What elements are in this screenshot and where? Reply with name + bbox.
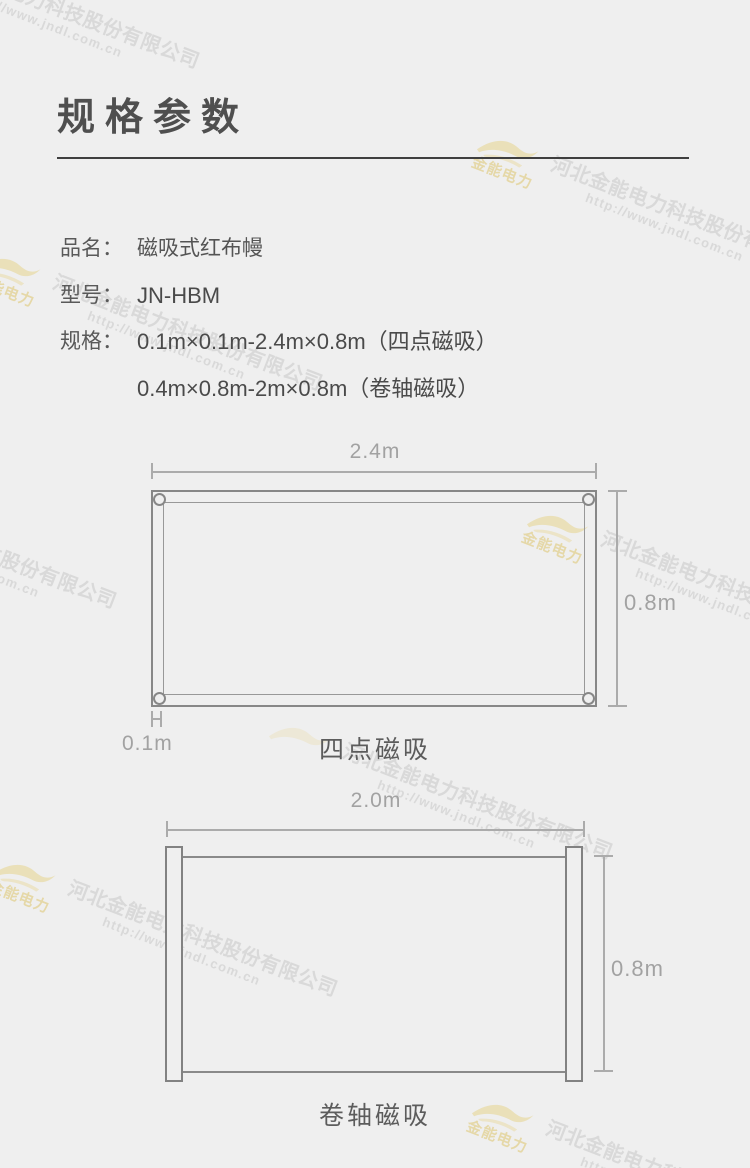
d1-magnet-dim-line: [151, 718, 162, 720]
d1-magnet-dot: [153, 692, 166, 705]
d2-width-dimension-label: 2.0m: [330, 789, 422, 813]
d2-height-dimension-line: [603, 856, 605, 1072]
spec-row-product-name: 品名： 磁吸式红布幔: [60, 236, 263, 262]
spec-label: 品名：: [60, 236, 137, 262]
d1-magnet-dot: [582, 692, 595, 705]
d2-cloth-panel: [182, 856, 566, 1073]
d1-height-dimension-line: [616, 490, 618, 707]
watermark-url-text: http://www.jndl.com.cn: [0, 0, 125, 60]
d1-width-dimension-label: 2.4m: [330, 440, 420, 464]
company-logo-icon: [0, 246, 43, 292]
d2-height-dimension-label: 0.8m: [611, 956, 664, 982]
watermark-url-text: http://www.jndl.com.cn: [0, 526, 42, 600]
spec-row-model: 型号： JN-HBM: [60, 283, 220, 309]
d2-roller-bar-right: [565, 846, 583, 1082]
watermark-logo-text: 金能电力: [464, 1115, 531, 1158]
d1-magnet-dimension-label: 0.1m: [122, 732, 173, 756]
watermark-logo-text: 金能电力: [0, 269, 38, 312]
d2-caption: 卷轴磁吸: [295, 1096, 455, 1132]
spec-label: 型号：: [60, 283, 137, 309]
d1-cloth-inner-frame: [163, 502, 585, 695]
d1-width-dimension-line: [152, 471, 597, 473]
d1-magnet-dot: [582, 493, 595, 506]
watermark-company-text: 河北金能电力科技股份有限公司: [542, 1112, 750, 1168]
company-logo-icon: [469, 1092, 536, 1138]
spec-value: 磁吸式红布幔: [137, 236, 263, 262]
watermark-company-text: 河北金能电力科技股份有限公司: [597, 523, 750, 653]
spec-value: 0.4m×0.8m-2m×0.8m（卷轴磁吸）: [137, 376, 479, 402]
watermark-url-text: http://www.jndl.com.cn: [578, 1154, 740, 1168]
watermark-url-text: http://www.jndl.com.cn: [583, 190, 745, 264]
spec-label: [60, 376, 137, 402]
company-logo-icon: [474, 128, 541, 174]
d2-roller-bar-left: [165, 846, 183, 1082]
d1-height-dimension-label: 0.8m: [624, 590, 677, 616]
spec-row-size-1: 规格： 0.1m×0.1m-2.4m×0.8m（四点磁吸）: [60, 329, 498, 355]
spec-row-size-2: 0.4m×0.8m-2m×0.8m（卷轴磁吸）: [60, 376, 479, 402]
d1-dim-tick: [608, 705, 627, 707]
product-spec-page: 金能电力 河北金能电力科技股份有限公司 http://www.jndl.com.…: [0, 0, 750, 1168]
d2-dim-tick: [594, 1070, 613, 1072]
spec-label: 规格：: [60, 329, 137, 355]
title-divider: [57, 157, 689, 159]
d1-dim-tick: [595, 463, 597, 479]
watermark-company-text: 河北金能电力科技股份有限公司: [0, 0, 205, 74]
watermark-company-text: 河北金能电力科技股份有限公司: [0, 484, 122, 614]
d2-width-dimension-line: [167, 829, 584, 831]
d2-dim-tick: [583, 821, 585, 837]
watermark-company-text: 河北金能电力科技股份有限公司: [547, 148, 750, 278]
company-logo-icon: [0, 852, 58, 898]
watermark-logo-text: 金能电力: [0, 875, 53, 918]
page-title: 规格参数: [57, 86, 249, 141]
d1-magnet-dot: [153, 493, 166, 506]
spec-value: 0.1m×0.1m-2.4m×0.8m（四点磁吸）: [137, 329, 498, 355]
d1-caption: 四点磁吸: [300, 730, 450, 766]
spec-value: JN-HBM: [137, 283, 220, 309]
